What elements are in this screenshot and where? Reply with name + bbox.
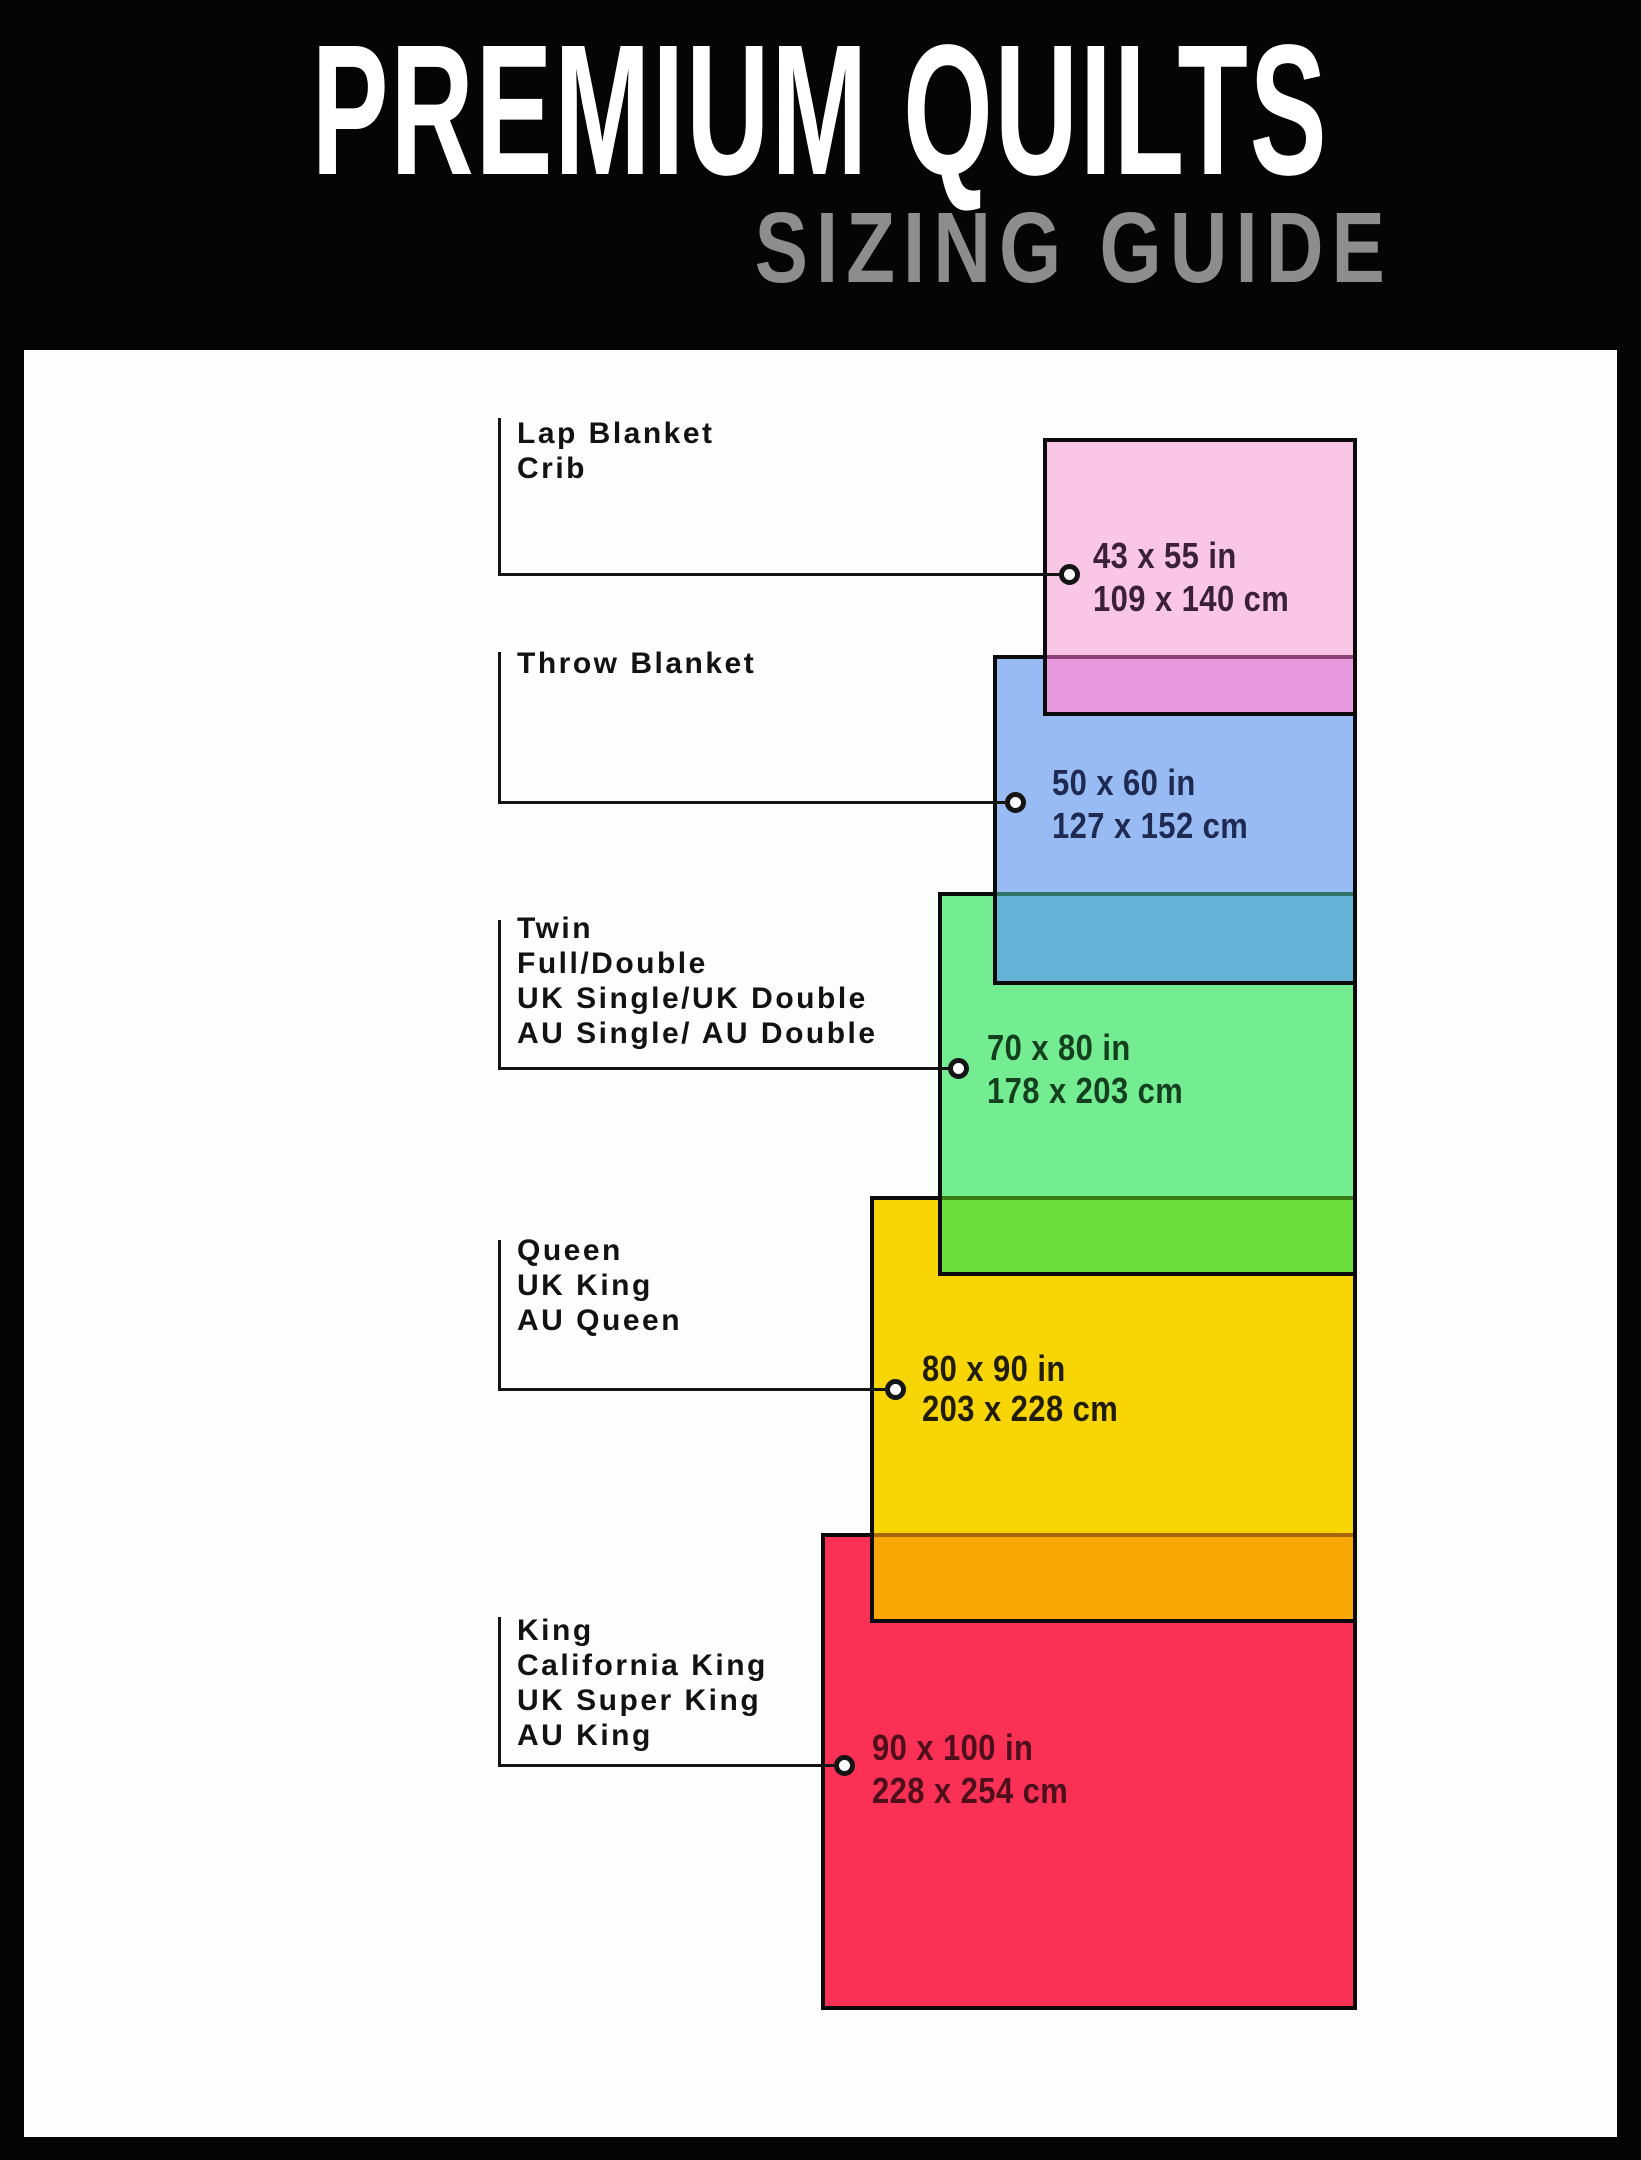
connector-dot-twin xyxy=(948,1058,969,1079)
size-dimensions-lap-crib: 43 x 55 in 109 x 140 cm xyxy=(1093,534,1289,620)
size-label-line: King xyxy=(517,1613,768,1648)
size-cm: 178 x 203 cm xyxy=(987,1069,1183,1112)
size-dimensions-twin: 70 x 80 in 178 x 203 cm xyxy=(987,1026,1183,1112)
size-labels-queen: Queen UK King AU Queen xyxy=(517,1233,682,1338)
connector-dot-king xyxy=(834,1755,855,1776)
size-label-line: Lap Blanket xyxy=(517,416,715,451)
overlap-lap-over-throw xyxy=(1047,655,1353,712)
size-label-line: UK King xyxy=(517,1268,682,1303)
size-labels-king: King California King UK Super King AU Ki… xyxy=(517,1613,768,1753)
connector-horizontal-twin xyxy=(498,1067,948,1070)
connector-horizontal-king xyxy=(498,1764,834,1767)
page-subtitle: SIZING GUIDE xyxy=(755,198,1393,298)
size-dimensions-throw: 50 x 60 in 127 x 152 cm xyxy=(1052,761,1248,847)
size-label-line: AU King xyxy=(517,1718,768,1753)
connector-vertical-queen xyxy=(498,1240,501,1389)
overlap-throw-over-twin xyxy=(997,892,1353,981)
size-labels-throw: Throw Blanket xyxy=(517,646,756,681)
size-dimensions-king: 90 x 100 in 228 x 254 cm xyxy=(872,1726,1068,1812)
subheader: SIZING GUIDE xyxy=(0,198,1393,298)
connector-horizontal-throw xyxy=(498,801,1005,804)
connector-vertical-king xyxy=(498,1617,501,1765)
size-inches: 70 x 80 in xyxy=(987,1026,1183,1069)
sizing-guide-page: PREMIUM QUILTS SIZING GUIDE Lap Blanket … xyxy=(0,0,1641,2160)
size-labels-twin: Twin Full/Double UK Single/UK Double AU … xyxy=(517,911,878,1051)
connector-vertical-throw xyxy=(498,652,501,802)
size-label-line: UK Single/UK Double xyxy=(517,981,878,1016)
size-label-line: AU Queen xyxy=(517,1303,682,1338)
size-cm: 127 x 152 cm xyxy=(1052,804,1248,847)
size-label-line: Queen xyxy=(517,1233,682,1268)
connector-dot-lap-crib xyxy=(1059,564,1080,585)
overlap-twin-over-queen xyxy=(942,1196,1353,1272)
size-inches: 43 x 55 in xyxy=(1093,534,1289,577)
connector-horizontal-lap-crib xyxy=(498,573,1059,576)
size-label-line: California King xyxy=(517,1648,768,1683)
size-inches: 80 x 90 in xyxy=(922,1349,1118,1389)
size-cm: 228 x 254 cm xyxy=(872,1769,1068,1812)
size-label-line: Full/Double xyxy=(517,946,878,981)
size-cm: 203 x 228 cm xyxy=(922,1389,1118,1429)
size-cm: 109 x 140 cm xyxy=(1093,577,1289,620)
size-dimensions-queen: 80 x 90 in 203 x 228 cm xyxy=(922,1349,1118,1429)
connector-horizontal-queen xyxy=(498,1388,885,1391)
size-labels-lap-crib: Lap Blanket Crib xyxy=(517,416,715,486)
size-label-line: AU Single/ AU Double xyxy=(517,1016,878,1051)
connector-vertical-twin xyxy=(498,920,501,1068)
connector-dot-queen xyxy=(885,1379,906,1400)
connector-vertical-lap-crib xyxy=(498,418,501,574)
page-title: PREMIUM QUILTS xyxy=(312,18,1329,204)
size-inches: 50 x 60 in xyxy=(1052,761,1248,804)
overlap-queen-over-king xyxy=(874,1533,1353,1619)
size-label-line: Throw Blanket xyxy=(517,646,756,681)
size-label-line: UK Super King xyxy=(517,1683,768,1718)
connector-dot-throw xyxy=(1005,792,1026,813)
header: PREMIUM QUILTS xyxy=(0,18,1641,204)
size-inches: 90 x 100 in xyxy=(872,1726,1068,1769)
size-label-line: Crib xyxy=(517,451,715,486)
size-label-line: Twin xyxy=(517,911,878,946)
